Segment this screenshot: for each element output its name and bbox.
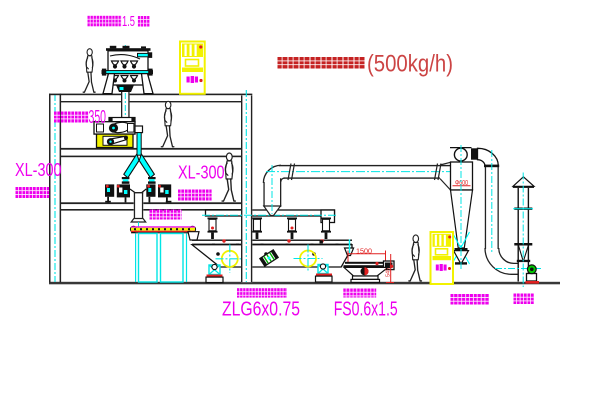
svg-text:1500: 1500 [356,249,372,256]
svg-text:545: 545 [386,268,392,277]
svg-text:350: 350 [89,107,107,127]
svg-text:FS0.6x1.5: FS0.6x1.5 [334,299,398,321]
svg-text:1.5: 1.5 [122,14,135,30]
svg-text:ZLG6x0.75: ZLG6x0.75 [222,299,300,321]
svg-text:XL-300: XL-300 [178,161,225,182]
svg-text:XL-300: XL-300 [15,159,62,180]
svg-text:Φ600: Φ600 [455,180,468,187]
svg-text:(500kg/h): (500kg/h) [367,51,453,78]
